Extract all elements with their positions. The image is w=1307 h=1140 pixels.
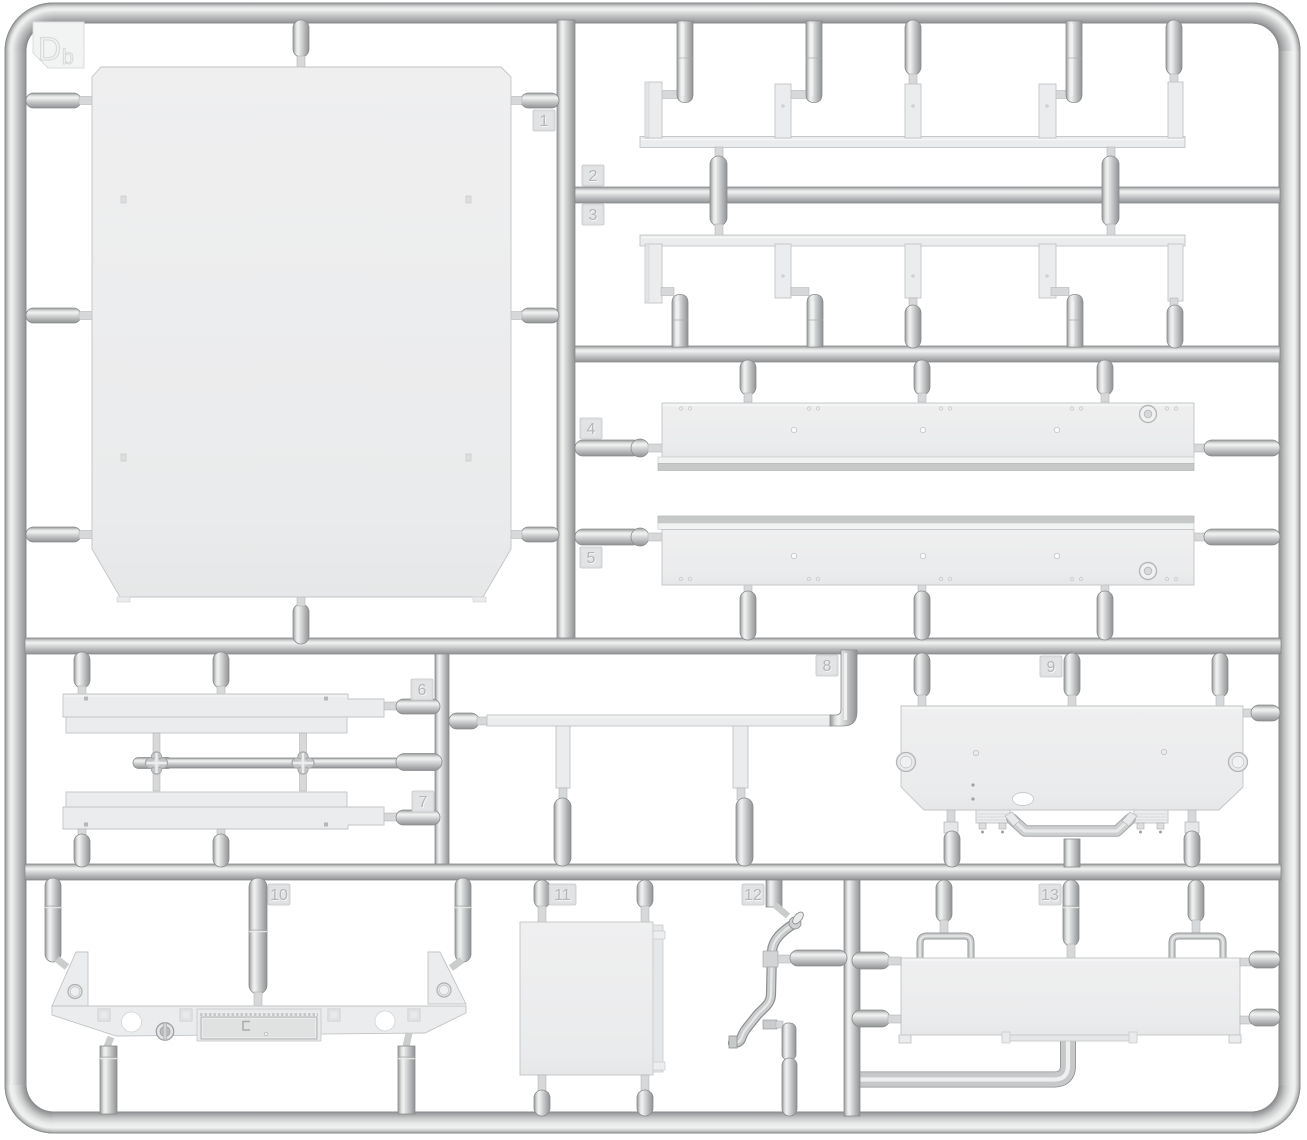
svg-text:1: 1 <box>540 113 549 130</box>
svg-text:12: 12 <box>744 887 762 904</box>
svg-text:8: 8 <box>823 658 832 675</box>
svg-text:2: 2 <box>589 168 598 185</box>
svg-text:b: b <box>62 46 74 69</box>
svg-text:9: 9 <box>1047 659 1056 676</box>
svg-text:4: 4 <box>587 421 596 438</box>
svg-text:11: 11 <box>554 887 571 904</box>
svg-text:5: 5 <box>587 550 596 567</box>
svg-text:3: 3 <box>589 207 598 224</box>
svg-text:D: D <box>38 31 61 67</box>
svg-text:10: 10 <box>270 887 288 904</box>
svg-text:6: 6 <box>418 682 427 699</box>
svg-text:13: 13 <box>1041 887 1059 904</box>
svg-text:7: 7 <box>419 794 428 811</box>
